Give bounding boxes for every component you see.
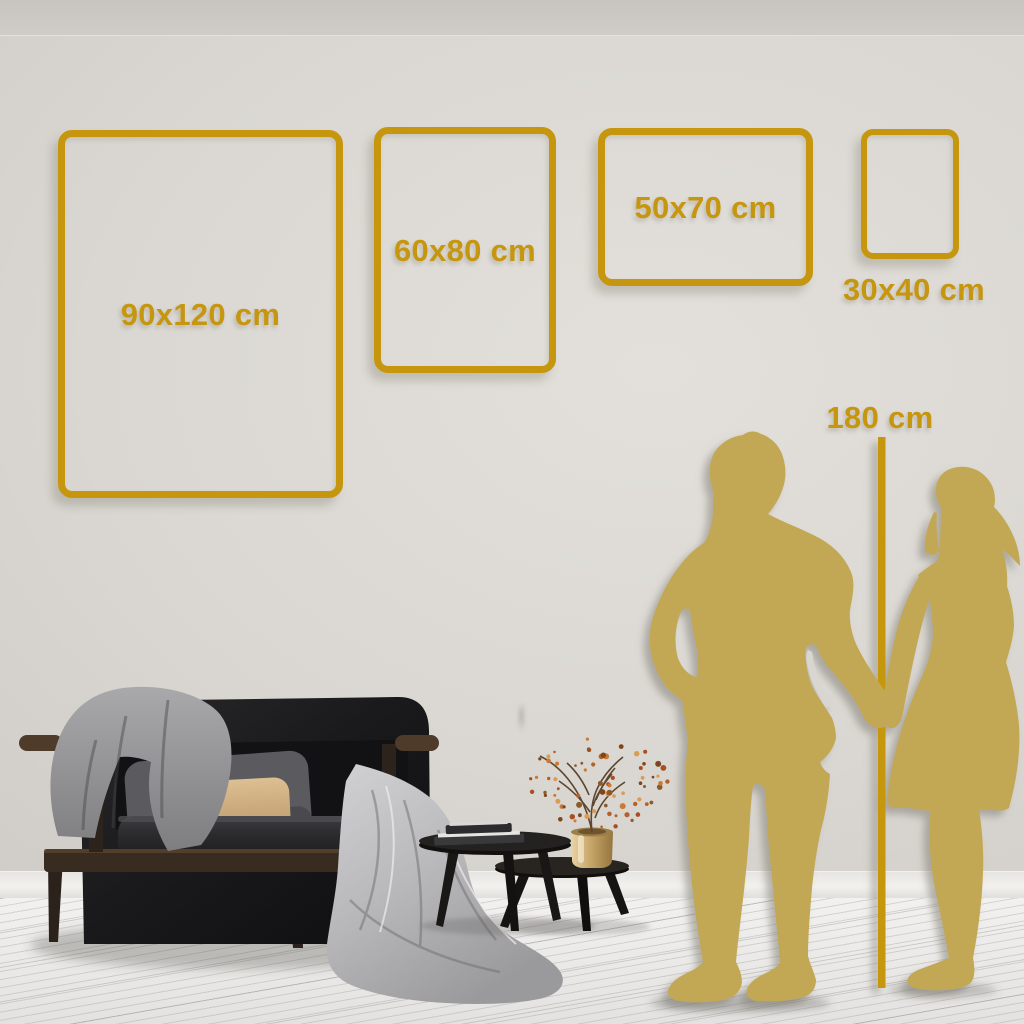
woman-silhouette xyxy=(881,467,1020,991)
size-guide-scene: 90x120 cm 60x80 cm 50x70 cm 30x40 cm 180… xyxy=(0,0,1024,1024)
woman-hair-strand xyxy=(925,512,939,555)
people-layer xyxy=(0,0,1024,1024)
woman-leg xyxy=(907,806,983,990)
man-silhouette xyxy=(650,431,893,1002)
